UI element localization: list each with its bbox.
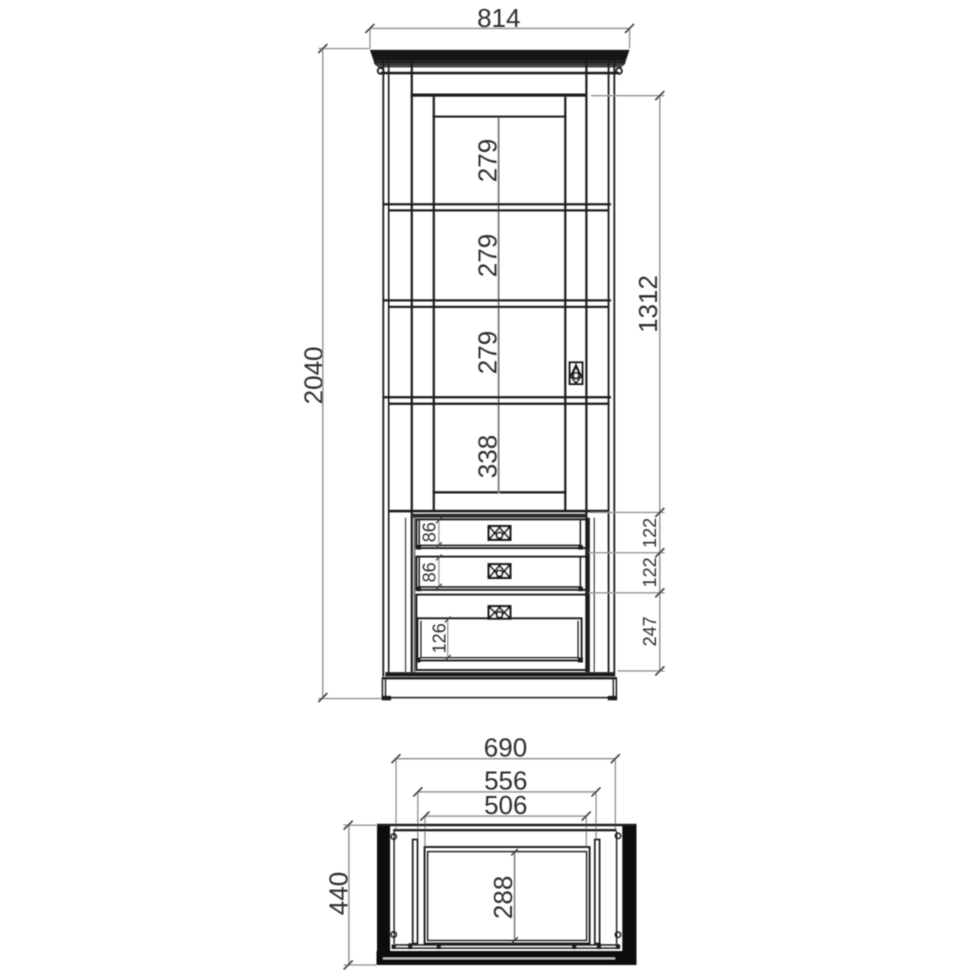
svg-text:86: 86 — [420, 562, 440, 582]
svg-text:122: 122 — [640, 518, 660, 548]
svg-text:279: 279 — [473, 139, 503, 182]
svg-text:279: 279 — [473, 234, 503, 277]
svg-text:288: 288 — [488, 876, 518, 919]
svg-text:86: 86 — [420, 522, 440, 542]
svg-text:506: 506 — [484, 790, 527, 820]
svg-text:126: 126 — [430, 623, 450, 653]
svg-text:122: 122 — [640, 557, 660, 587]
svg-text:247: 247 — [640, 616, 660, 646]
svg-text:279: 279 — [473, 331, 503, 374]
svg-text:2040: 2040 — [299, 346, 329, 404]
svg-text:1312: 1312 — [633, 275, 663, 333]
svg-text:338: 338 — [473, 435, 503, 478]
